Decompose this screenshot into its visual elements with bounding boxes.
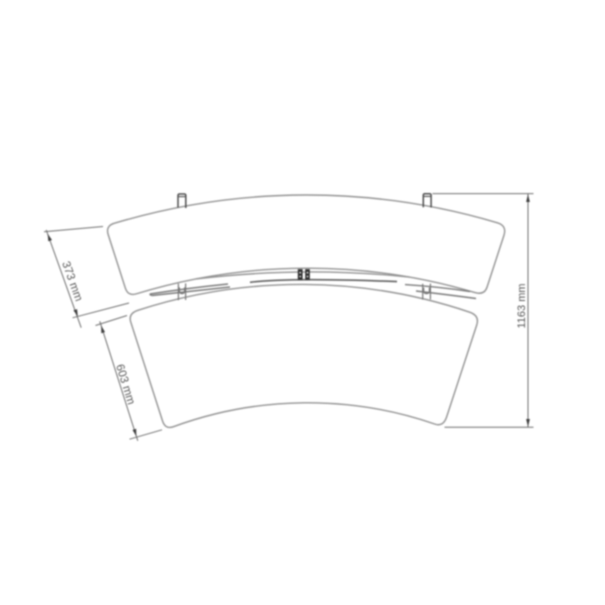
svg-text:603 mm: 603 mm (113, 363, 137, 406)
svg-text:373 mm: 373 mm (59, 260, 84, 303)
svg-text:1163 mm: 1163 mm (516, 283, 528, 328)
